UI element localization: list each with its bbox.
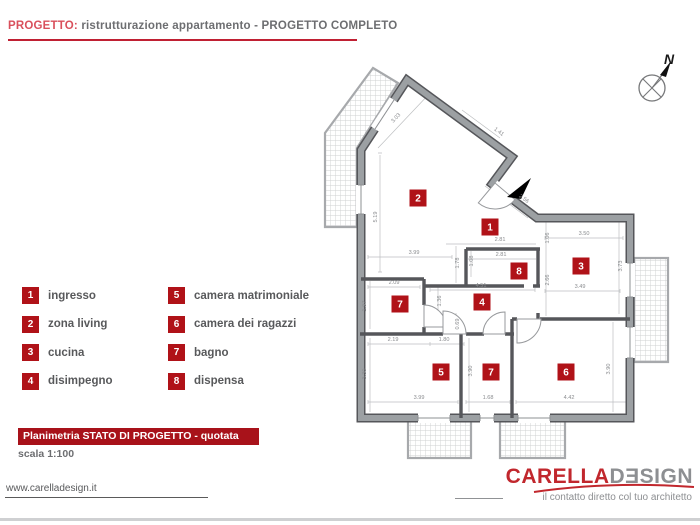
dimension-label: 4.51 (476, 283, 487, 289)
brand-logo-gray: DƎSIGN (609, 465, 693, 488)
legend-item-label: cucina (48, 347, 84, 359)
dimension-label: 1.97 (362, 301, 368, 312)
website-url: www.carelladesign.it (6, 483, 97, 494)
dimension-label: 2.66 (545, 275, 551, 286)
drawing-title-bar: Planimetria STATO DI PROGETTO - quotata (18, 428, 259, 445)
svg-text:7: 7 (488, 368, 494, 379)
svg-text:6: 6 (563, 368, 569, 379)
dimension-label: 1.36 (437, 296, 443, 307)
legend-column-2: 5camera matrimoniale6camera dei ragazzi7… (168, 287, 309, 401)
legend-number-badge: 2 (22, 316, 39, 333)
legend-item-dispensa: 8dispensa (168, 373, 309, 390)
compass-north-label: N (664, 51, 675, 67)
svg-text:7: 7 (397, 300, 403, 311)
dimension-label: 1.08 (469, 256, 475, 267)
legend-item-camera-matrimoniale: 5camera matrimoniale (168, 287, 309, 304)
dimension-label: 2.09 (389, 280, 400, 286)
legend-item-label: camera matrimoniale (194, 290, 309, 302)
balcony-right (634, 258, 668, 362)
room-label-8: 8 (511, 263, 528, 280)
url-divider (5, 497, 208, 498)
legend-number-badge: 7 (168, 344, 185, 361)
legend-item-label: disimpegno (48, 375, 113, 387)
dimension-label: 3.73 (618, 261, 624, 272)
dimension-label: 1.41 (492, 127, 504, 138)
bathroom2-door-arc (483, 312, 505, 334)
room-label-4: 4 (474, 294, 491, 311)
dimension-label: 4.42 (564, 395, 575, 401)
dimension-label: 0.69 (455, 319, 461, 330)
legend-item-label: bagno (194, 347, 229, 359)
legend-number-badge: 8 (168, 373, 185, 390)
balcony-bottom-left (408, 420, 471, 458)
svg-text:3: 3 (578, 262, 584, 273)
legend-item-disimpegno: 4disimpegno (22, 373, 113, 390)
room-label-2: 2 (410, 190, 427, 207)
north-compass-icon: N (639, 51, 675, 101)
legend-number-badge: 4 (22, 373, 39, 390)
dimension-label: 2.19 (388, 337, 399, 343)
legend-number-badge: 6 (168, 316, 185, 333)
dimension-label: 2.81 (495, 237, 506, 243)
dimension-label: 3.90 (468, 366, 474, 377)
svg-text:2: 2 (415, 194, 421, 205)
dimension-label: 3.99 (414, 395, 425, 401)
room-label-5: 5 (433, 364, 450, 381)
dimension-label: 3.49 (575, 284, 586, 290)
svg-text:4: 4 (479, 298, 485, 309)
legend-item-zona-living: 2zona living (22, 316, 113, 333)
brand-tagline: il contatto diretto col tuo architetto (542, 492, 692, 503)
svg-text:5: 5 (438, 368, 444, 379)
legend-column-1: 1ingresso2zona living3cucina4disimpegno (22, 287, 113, 401)
dimension-label: 3.30 (362, 369, 368, 380)
legend-item-ingresso: 1ingresso (22, 287, 113, 304)
dimension-label: 3.90 (606, 364, 612, 375)
legend-item-bagno: 7bagno (168, 344, 309, 361)
dimension-label: 1.80 (439, 337, 450, 343)
brand-logo: CARELLADƎSIGN (506, 465, 693, 489)
legend-item-cucina: 3cucina (22, 344, 113, 361)
dimension-label: 3.99 (409, 250, 420, 256)
balcony-bottom-right (500, 420, 565, 458)
legend-item-camera-dei-ragazzi: 6camera dei ragazzi (168, 316, 309, 333)
dimension-label: 3.03 (390, 112, 402, 124)
legend-item-label: camera dei ragazzi (194, 318, 296, 330)
dimension-label: 3.50 (579, 231, 590, 237)
legend-number-badge: 1 (22, 287, 39, 304)
room-label-3: 3 (573, 258, 590, 275)
dimension-label: 1.78 (455, 258, 461, 269)
floor-plan-page: { "header": { "label": "PROGETTO:", "tit… (0, 0, 700, 525)
dimension-labels: 3.031.412.565.193.502.811.063.992.811.78… (362, 112, 624, 401)
legend-number-badge: 5 (168, 287, 185, 304)
dimension-label: 2.81 (496, 252, 507, 258)
room-label-6: 6 (558, 364, 575, 381)
legend-item-label: dispensa (194, 375, 244, 387)
legend-item-label: ingresso (48, 290, 96, 302)
dimension-label: 1.68 (483, 395, 494, 401)
legend-number-badge: 3 (22, 344, 39, 361)
dimension-label: 1.06 (545, 233, 551, 244)
brand-logo-red: CARELLA (506, 465, 610, 488)
floor-plan-svg: N 218374576 3.031.412.565.193.502.811.06… (0, 0, 700, 525)
tagline-divider (455, 498, 503, 499)
bedroom6-door-arc (517, 319, 541, 343)
dimension-label: 5.19 (373, 212, 379, 223)
room-label-7: 7 (392, 296, 409, 313)
drawing-scale: scala 1:100 (18, 448, 74, 460)
room-label-1: 1 (482, 219, 499, 236)
entrance-door-arc (478, 183, 515, 220)
page-bottom-edge (0, 518, 700, 521)
svg-text:8: 8 (516, 267, 522, 278)
room-label-7: 7 (483, 364, 500, 381)
svg-text:1: 1 (487, 223, 493, 234)
legend-item-label: zona living (48, 318, 107, 330)
